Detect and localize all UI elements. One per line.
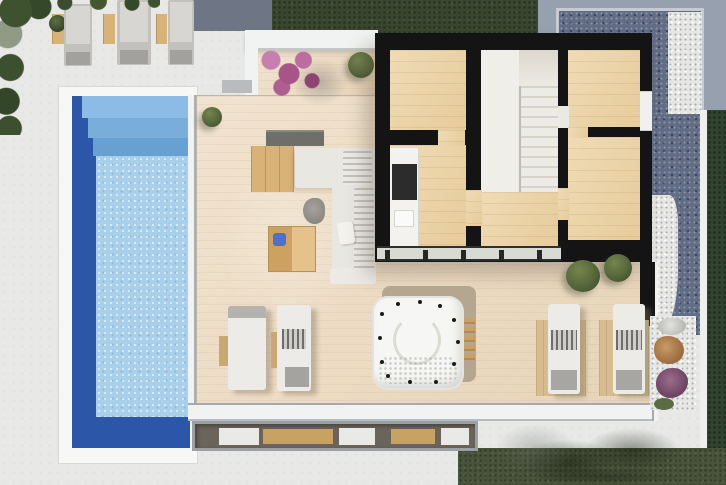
window-right-wall [640,91,652,131]
sunken-bench-strip [192,421,478,451]
hot-tub-jet [434,380,438,384]
bench-cushion-white-1 [219,428,259,445]
sliding-glass-doors [377,246,561,261]
glass-door-post [499,250,504,261]
gravel-bed-white-stones [668,12,702,114]
lounger-foot [120,50,148,64]
bush-terrace-right-2 [604,254,632,282]
door-gap-bedroom-kitchen [438,130,465,146]
lounger-head-pad [228,306,266,318]
coffee-table [268,226,316,272]
outdoor-cabinet [251,146,294,192]
sun-lounger-br-1 [548,304,580,394]
sofa-chaise [295,148,375,188]
sun-lounger-top-3 [168,0,194,65]
lawn-right-strip [707,110,726,462]
hot-tub-jet [418,300,422,304]
hot-tub-foam [378,356,458,384]
tree-shadow-on-paving [495,424,575,474]
bush-terrace-right-1 [566,260,600,292]
lounger-cushion [170,2,192,42]
wood-mat-1 [219,336,228,366]
sofa-main [332,186,376,272]
door-gap-hall-right-lower [558,188,569,220]
sofa-pillow [337,221,356,245]
pool-step-2 [88,118,188,138]
top-shade-paving [185,0,275,31]
bedroom-right-floor [568,137,640,240]
sun-lounger-bl-1 [228,306,266,390]
side-table-2 [103,14,115,44]
bush-terrace-top [348,52,374,78]
terrace-border-left [188,95,196,421]
pool-step-1 [82,96,188,118]
hot-tub-jet [452,362,456,366]
pool-step-3 [93,138,188,156]
hot-tub-jet [396,302,400,306]
glass-door-post [423,250,428,261]
sun-lounger-br-2 [613,304,645,394]
hot-tub-jet [380,360,384,364]
staircase-steps [519,86,558,192]
sun-lounger-bl-2 [277,305,311,391]
bougainvillea [253,44,325,98]
lounger-foot [66,52,90,65]
outdoor-bench [266,130,324,146]
stair-landing [481,50,519,192]
bedroom-top-right-floor [568,50,640,127]
lounger-foot [616,370,642,390]
shrubs-top-left [0,0,52,135]
lounger-backrest-slats [282,329,306,349]
hot-tub-jet [386,374,390,378]
foliage-top-edge [48,0,160,13]
cooktop [392,164,417,200]
lounger-rail-slats [616,330,642,350]
blue-tray [273,233,286,246]
hot-tub-jet [456,340,460,344]
bush-terrace-left [202,107,222,127]
hot-tub-towel [463,318,475,364]
stair-hall [481,50,558,192]
garden-plant-green [654,398,674,410]
floor-plant-gray [303,198,325,224]
lounger-foot [285,367,309,387]
bench-wood-center [263,429,333,444]
lounger-rail-slats [551,330,577,350]
sofa-chaise-pillows [343,151,372,185]
bedroom-left-floor [390,50,466,130]
kitchen-sink [394,210,414,227]
sofa-back-cushions [354,188,374,270]
hot-tub-jet [378,336,382,340]
hot-tub [372,296,464,390]
garden-plant-amber [654,336,684,364]
door-gap-hall-right-upper [558,106,569,128]
bench-cushion-white-3 [441,428,469,445]
glass-door-post [537,250,542,261]
door-gap-bedrooms-right [568,127,588,138]
floor-plan-scene [0,0,726,485]
planter-wall-gray [222,80,252,93]
bench-wood-right [391,429,435,444]
kitchen-counter [390,148,419,246]
side-table-3 [156,14,167,44]
lounger-foot [551,370,577,390]
boundary-wall-right [700,110,707,458]
pool-water [96,156,190,417]
hot-tub-jet [438,304,442,308]
stair-upper-flight [519,50,558,86]
lounger-foot [170,50,192,64]
door-gap-hall-left [466,190,482,226]
hot-tub-jet [380,312,384,316]
hall-lower-floor [481,192,558,246]
terrace-border-bottom [188,403,658,421]
glass-door-post [385,250,390,261]
glass-door-post [461,250,466,261]
hot-tub-jet [452,318,456,322]
bench-cushion-white-2 [339,428,375,445]
sun-lounger-top-1 [64,4,92,66]
hot-tub-jet [408,380,412,384]
sofa-arm [330,268,376,284]
lawn-top [272,0,538,33]
